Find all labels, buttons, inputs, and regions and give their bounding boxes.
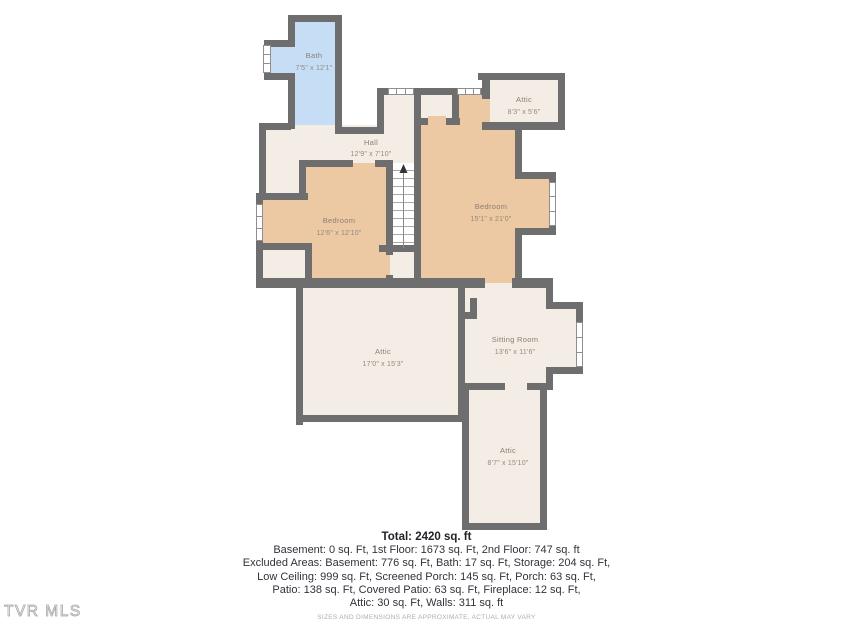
room-attic-bottom: [466, 386, 543, 526]
room-label-bedroom-left: Bedroom: [323, 216, 356, 225]
room-dims-hall: 12'9" x 7'10": [351, 151, 392, 158]
total-area: Total: 2420 sq. ft: [0, 531, 853, 544]
room-label-attic-bottom: Attic: [500, 446, 516, 455]
room-dims-bedroom-left: 12'6" x 12'10": [316, 230, 361, 237]
watermark-text: TVR MLS: [4, 603, 82, 620]
room-label-sitting: Sitting Room: [492, 335, 539, 344]
floorplan-drawing: Bath 7'5" x 12'1" Hall 12'9" x 7'10" Att…: [0, 0, 853, 530]
room-dims-attic-top: 8'3" x 5'6": [508, 109, 541, 116]
room-label-hall: Hall: [364, 138, 378, 147]
room-label-attic-middle: Attic: [375, 347, 391, 356]
disclaimer: SIZES AND DIMENSIONS ARE APPROXIMATE, AC…: [0, 614, 853, 621]
room-dims-bedroom-right: 15'1" x 21'0": [471, 216, 512, 223]
room-dims-attic-bottom: 8'7" x 15'10": [488, 460, 529, 467]
room-label-bedroom-right: Bedroom: [475, 202, 508, 211]
window-icon: [389, 89, 414, 95]
area-summary: Total: 2420 sq. ft Basement: 0 sq. Ft, 1…: [0, 531, 853, 621]
room-dims-bath: 7'5" x 12'1": [296, 65, 333, 72]
watermark-logo: TVR MLS: [2, 600, 122, 624]
room-dims-attic-middle: 17'0" x 15'3": [363, 361, 404, 368]
room-dims-sitting: 13'6" x 11'6": [495, 349, 536, 356]
room-label-bath: Bath: [306, 51, 323, 60]
window-icon: [257, 205, 263, 241]
summary-line: Excluded Areas: Basement: 776 sq. Ft, Ba…: [0, 557, 853, 570]
room-label-attic-top: Attic: [516, 95, 532, 104]
room-closet-left: [260, 248, 308, 281]
window-icon: [458, 89, 481, 95]
summary-line: Basement: 0 sq. Ft, 1st Floor: 1673 sq. …: [0, 544, 853, 557]
summary-line: Patio: 138 sq. Ft, Covered Patio: 63 sq.…: [0, 584, 853, 597]
floorplan-page: Bath 7'5" x 12'1" Hall 12'9" x 7'10" Att…: [0, 0, 853, 640]
summary-line: Low Ceiling: 999 sq. Ft, Screened Porch:…: [0, 571, 853, 584]
window-icon: [264, 46, 271, 73]
window-icon: [577, 323, 583, 367]
window-icon: [550, 183, 556, 226]
summary-line: Attic: 30 sq. Ft, Walls: 311 sq. ft: [0, 597, 853, 610]
doorway-attic-top: [480, 95, 490, 123]
